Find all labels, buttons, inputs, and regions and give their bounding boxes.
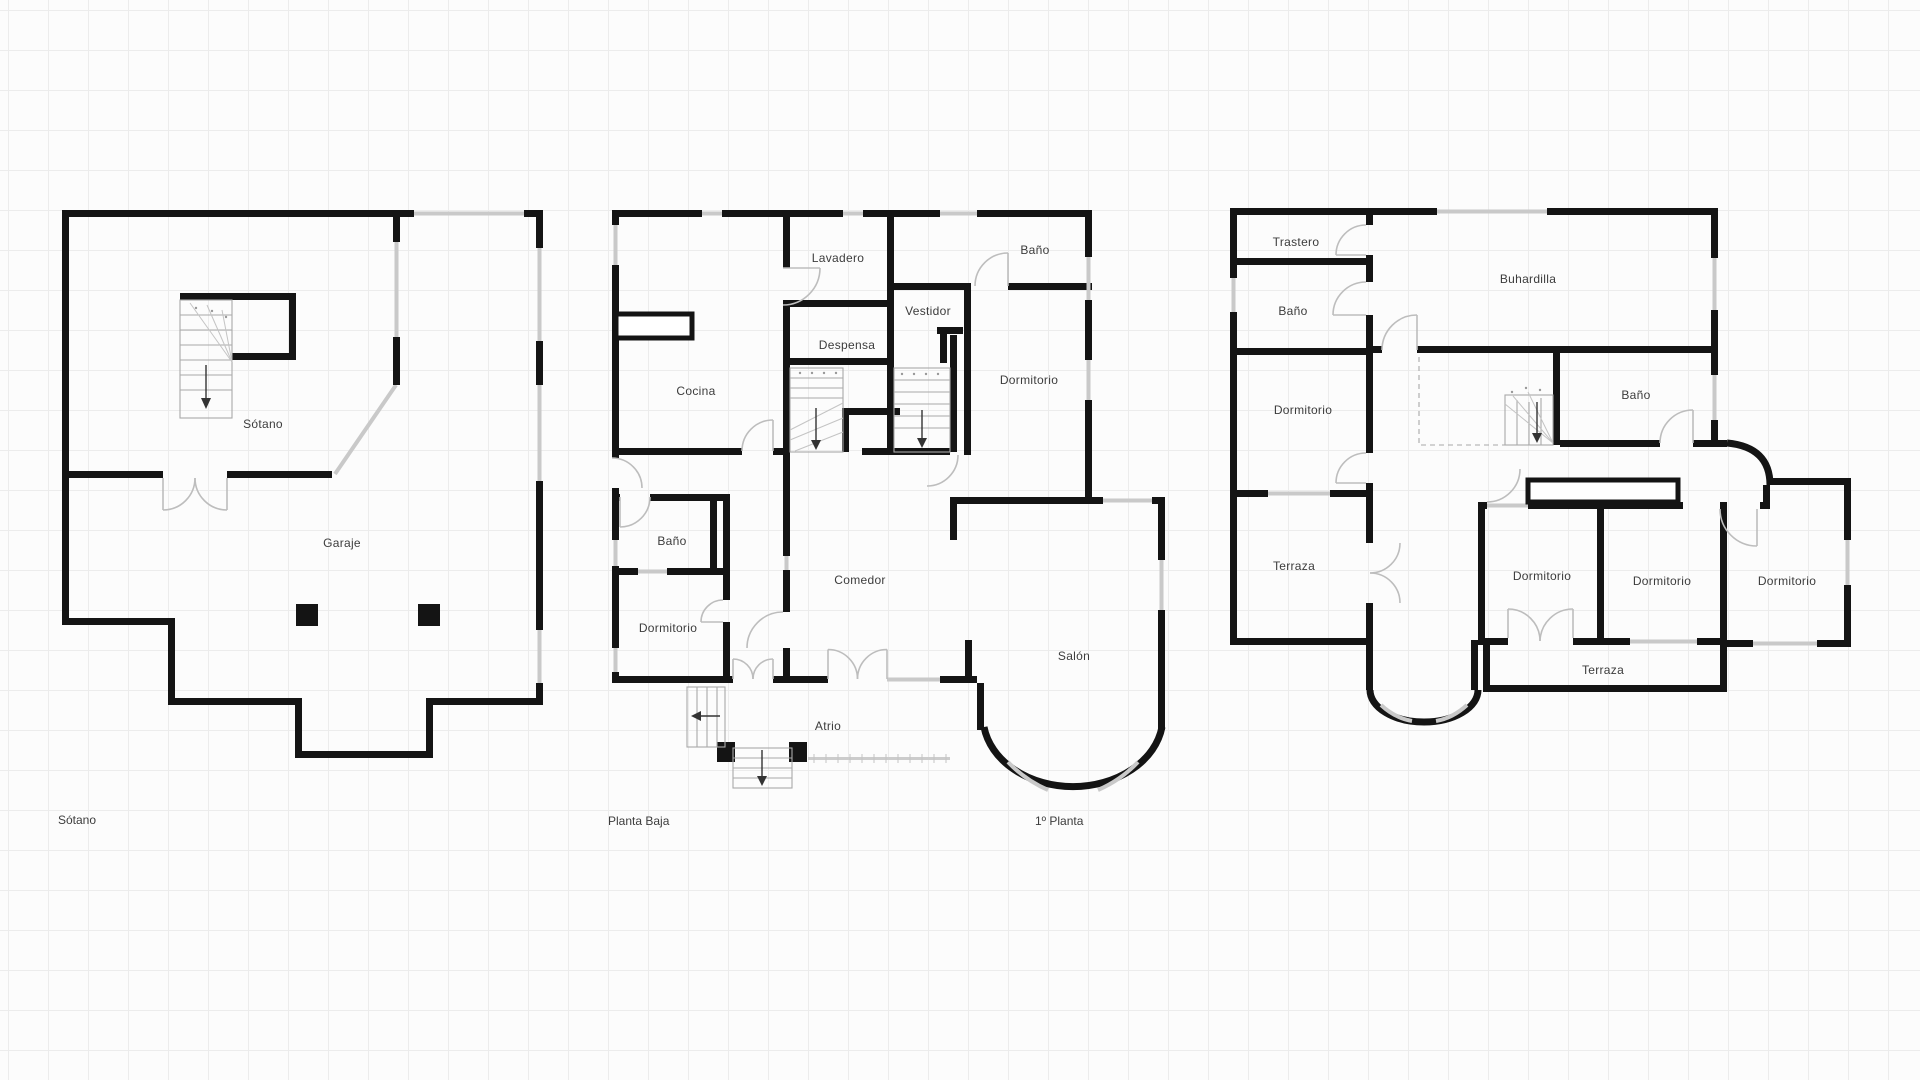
room-label-bano-w: Baño	[657, 534, 686, 548]
room-label-terraza-s: Terraza	[1582, 663, 1624, 677]
room-label-bano-nw: Baño	[1278, 304, 1307, 318]
room-label-dormitorio-w: Dormitorio	[639, 621, 697, 635]
room-label-vestidor: Vestidor	[905, 304, 951, 318]
column	[296, 604, 318, 626]
room-label-bano-ne: Baño	[1621, 388, 1650, 402]
room-label-despensa: Despensa	[819, 338, 875, 352]
room-label-trastero: Trastero	[1273, 235, 1320, 249]
room-label-cocina: Cocina	[676, 384, 715, 398]
plan-sotano-doors	[163, 478, 227, 510]
porch-and-entry-steps	[687, 687, 950, 788]
basement-staircase	[180, 293, 296, 418]
floor-caption-planta-baja: Planta Baja	[608, 814, 669, 828]
plan-planta-baja-walls	[612, 210, 1165, 790]
room-label-comedor: Comedor	[834, 573, 885, 587]
plan-sotano	[62, 210, 543, 758]
room-label-atrio: Atrio	[815, 719, 841, 733]
room-label-buhardilla: Buhardilla	[1500, 272, 1556, 286]
room-label-dormitorio-1: Dormitorio	[1513, 569, 1571, 583]
basement-access-staircase	[894, 368, 950, 452]
room-label-terraza-w: Terraza	[1273, 559, 1315, 573]
wardrobe-closet	[1528, 480, 1678, 502]
floor-caption-sotano: Sótano	[58, 813, 96, 827]
upper-staircase	[1419, 357, 1553, 445]
main-staircase	[790, 368, 900, 452]
room-label-dormitorio-nw: Dormitorio	[1274, 403, 1332, 417]
room-label-dormitorio-2: Dormitorio	[1633, 574, 1691, 588]
room-label-garaje: Garaje	[323, 536, 361, 550]
floor-plan-drawing	[0, 0, 1920, 1080]
bay-window-wall	[984, 727, 1162, 787]
floor-caption-primera-planta: 1º Planta	[1035, 814, 1083, 828]
room-label-salon: Salón	[1058, 649, 1090, 663]
floor-plan-sheet: Sótano Garaje Lavadero Baño Vestidor Des…	[0, 0, 1920, 1080]
room-label-sotano: Sótano	[243, 417, 283, 431]
room-label-dormitorio-3: Dormitorio	[1758, 574, 1816, 588]
kitchen-counter	[616, 314, 692, 338]
room-label-dormitorio-e: Dormitorio	[1000, 373, 1058, 387]
room-label-bano-top: Baño	[1020, 243, 1049, 257]
plan-sotano-walls	[62, 210, 543, 758]
garage-columns	[296, 604, 440, 626]
stair-tower-curve	[1370, 690, 1478, 722]
room-label-lavadero: Lavadero	[812, 251, 864, 265]
porch-post	[717, 742, 735, 762]
plan-planta-baja	[612, 210, 1165, 790]
curved-corner-wall	[1727, 443, 1770, 485]
column	[418, 604, 440, 626]
